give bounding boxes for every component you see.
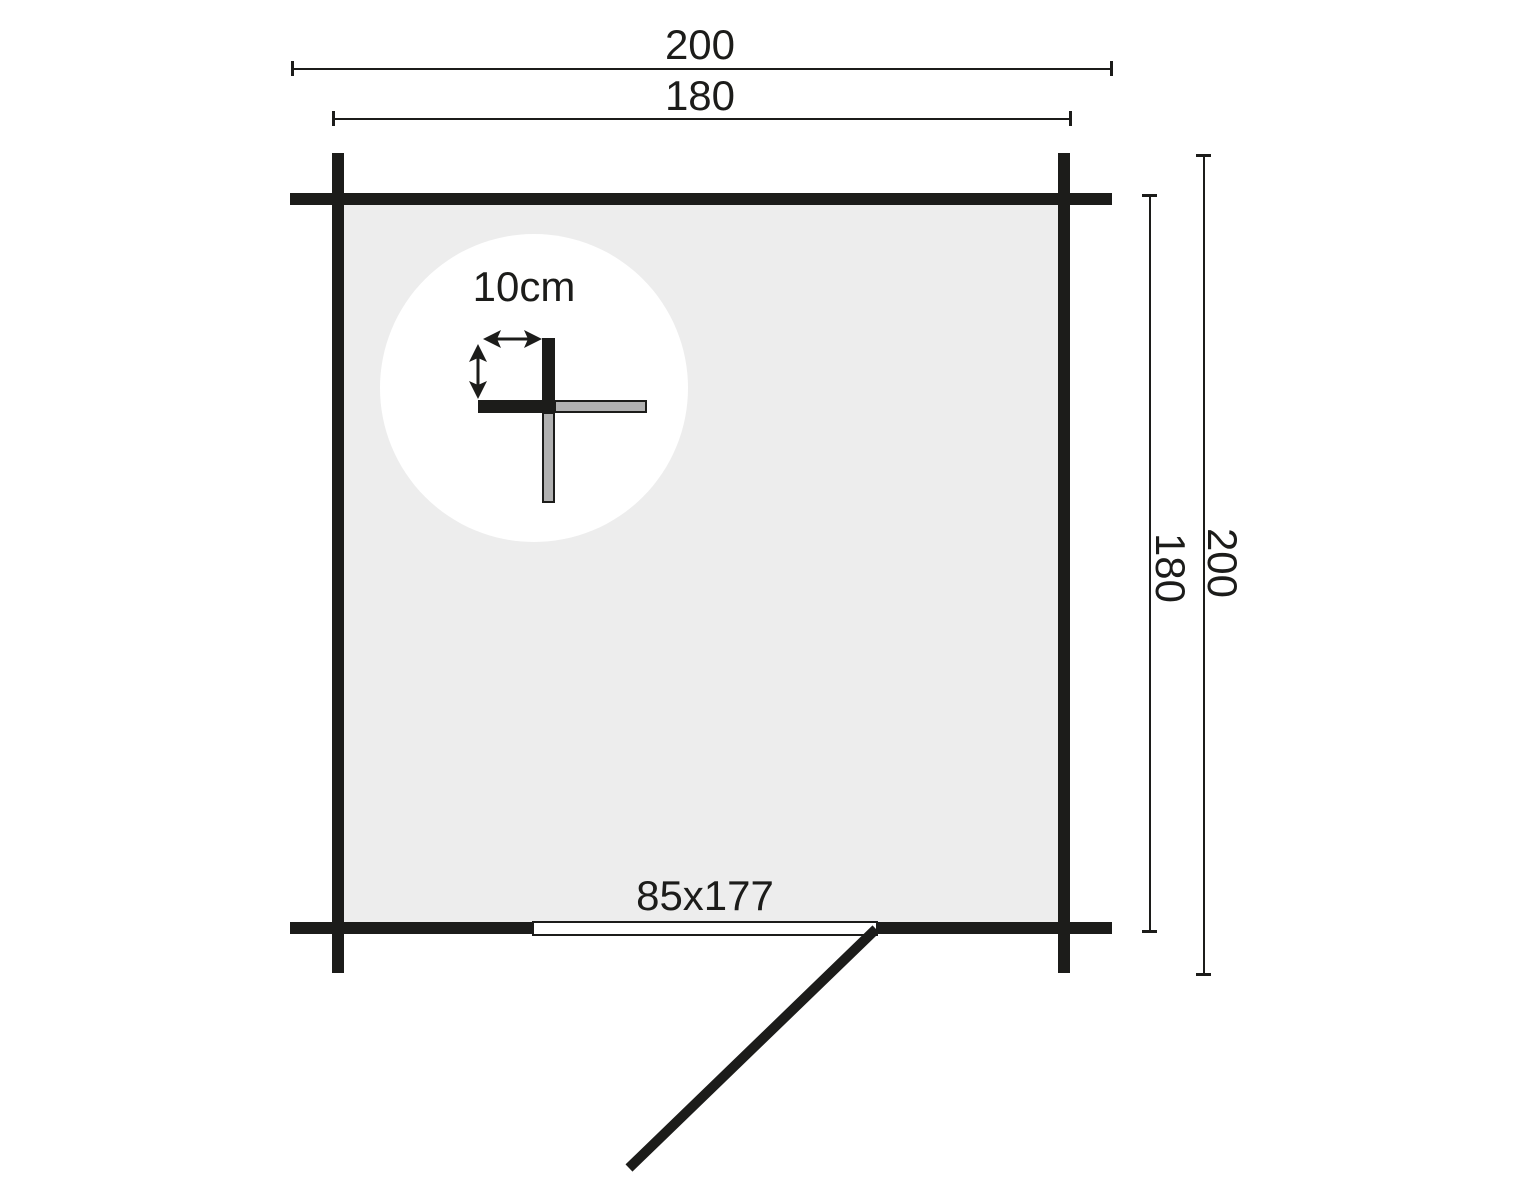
dimension-right-outer-tick-top [1196, 154, 1211, 157]
dimension-top-inner-label: 180 [630, 75, 770, 117]
dimension-right-inner-tick-bottom [1142, 930, 1157, 933]
dimension-top-outer-tick-right [1110, 61, 1113, 76]
detail-log-end-right [554, 400, 647, 413]
wall-bottom-right [876, 922, 1112, 934]
wall-left [332, 153, 344, 973]
wall-top [290, 193, 1112, 205]
floor-plan-canvas: 10cm 85x177 200 180 180 200 [0, 0, 1536, 1193]
door-opening [532, 921, 878, 936]
dimension-right-inner-label: 180 [1149, 508, 1191, 628]
dimension-top-outer-tick-left [291, 61, 294, 76]
wall-right [1058, 153, 1070, 973]
door-swing-line [629, 929, 876, 1168]
detail-log-end-bottom [542, 412, 555, 503]
wall-bottom-left [290, 922, 534, 934]
dimension-top-outer-label: 200 [630, 24, 770, 66]
dimension-top-inner-tick-left [332, 111, 335, 126]
dimension-right-outer-label: 200 [1201, 503, 1243, 623]
door-size-label: 85x177 [625, 875, 785, 917]
detail-wall-section-horizontal [478, 400, 556, 413]
dimension-right-inner-tick-top [1142, 194, 1157, 197]
detail-dimension-label: 10cm [444, 266, 604, 308]
dimension-top-outer-line [292, 68, 1112, 70]
dimension-right-outer-tick-bottom [1196, 973, 1211, 976]
dimension-top-inner-tick-right [1069, 111, 1072, 126]
